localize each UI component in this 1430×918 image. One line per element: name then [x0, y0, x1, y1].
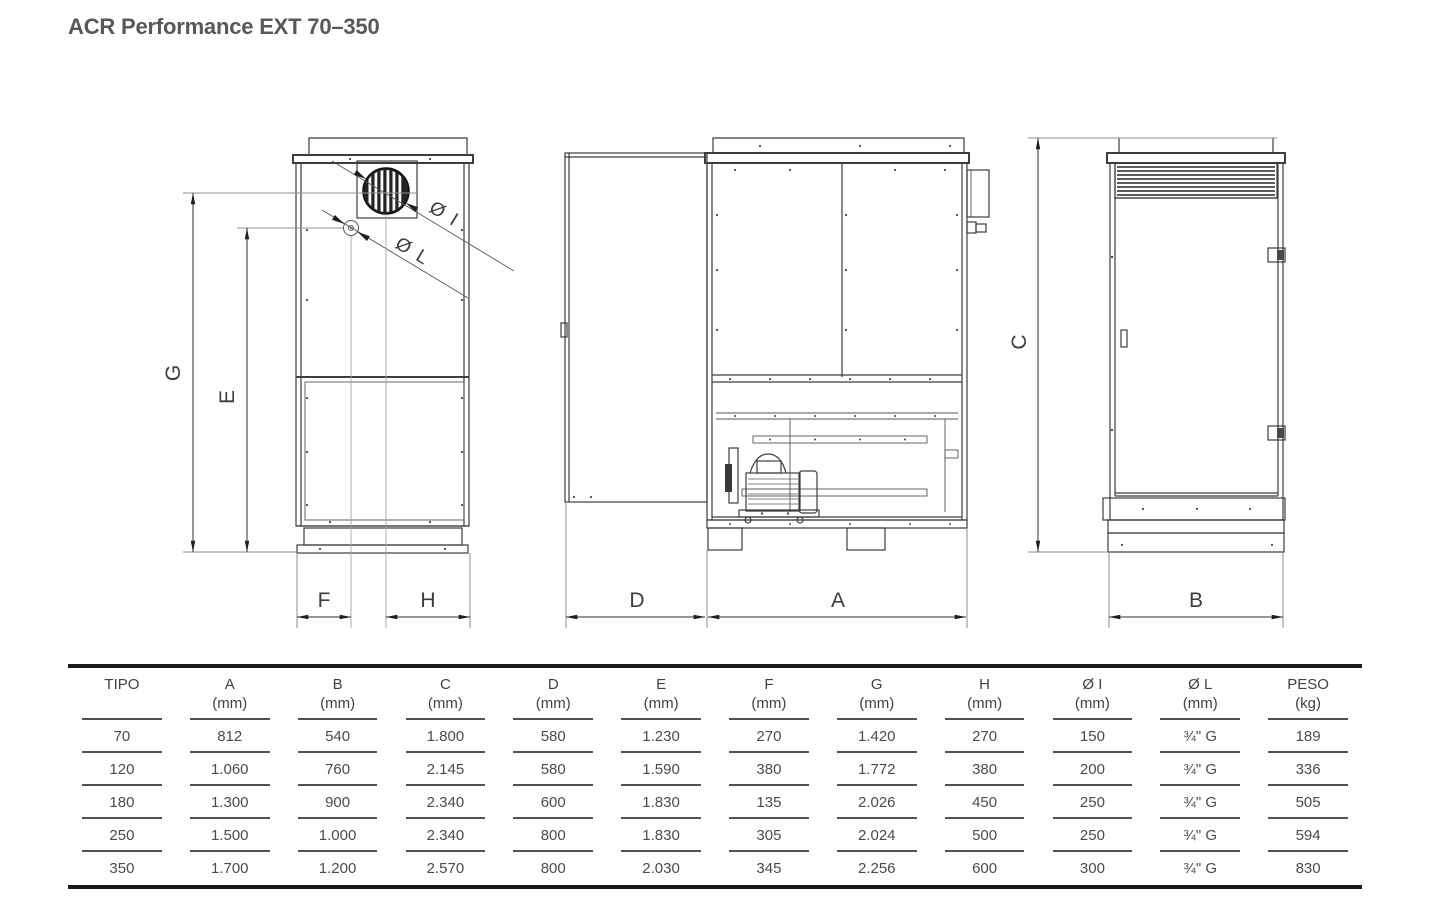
table-cell: 180: [68, 786, 176, 819]
dim-label-g: G: [162, 365, 185, 381]
burner-motor-assembly: [725, 448, 819, 523]
table-cell: 2.256: [823, 852, 931, 885]
table-cell: 450: [931, 786, 1039, 819]
dim-label-c: C: [1008, 334, 1031, 349]
table-cell: 500: [931, 819, 1039, 852]
table-cell: 2.340: [392, 786, 500, 819]
col-header-peso: PESO(kg): [1254, 668, 1362, 720]
table-cell: 2.024: [823, 819, 931, 852]
table-cell: 150: [1039, 720, 1147, 753]
dim-label-e: E: [216, 390, 239, 404]
table-cell: 345: [715, 852, 823, 885]
table-cell: 2.145: [392, 753, 500, 786]
table-cell: 2.030: [607, 852, 715, 885]
table-cell: 600: [499, 786, 607, 819]
table-cell: 380: [931, 753, 1039, 786]
table-cell: 1.590: [607, 753, 715, 786]
table-cell: 300: [1039, 852, 1147, 885]
table-cell: 270: [715, 720, 823, 753]
table-cell: 350: [68, 852, 176, 885]
table-cell: 336: [1254, 753, 1362, 786]
table-cell: 2.570: [392, 852, 500, 885]
dimension-table: TIPO A(mm) B(mm) C(mm) D(mm) E(mm) F(mm)…: [68, 664, 1362, 889]
table-cell: 305: [715, 819, 823, 852]
col-header-c: C(mm): [392, 668, 500, 720]
col-header-g: G(mm): [823, 668, 931, 720]
table-cell: 830: [1254, 852, 1362, 885]
table-cell: ¾" G: [1146, 753, 1254, 786]
dimension-lines: [183, 138, 1283, 628]
table-cell: 2.340: [392, 819, 500, 852]
rear-view-drawing: [1103, 138, 1285, 552]
col-header-h: H(mm): [931, 668, 1039, 720]
table-cell: 800: [499, 819, 607, 852]
table-cell: 1.830: [607, 786, 715, 819]
dim-label-d: D: [629, 589, 644, 612]
col-header-diameter-i: Ø I(mm): [1039, 668, 1147, 720]
screw-dots-side: [716, 169, 958, 331]
table-cell: 2.026: [823, 786, 931, 819]
dim-label-h: H: [420, 589, 435, 612]
table-cell: 505: [1254, 786, 1362, 819]
col-header-a: A(mm): [176, 668, 284, 720]
table-cell: 900: [284, 786, 392, 819]
table-cell: 250: [1039, 786, 1147, 819]
col-header-f: F(mm): [715, 668, 823, 720]
table-cell: 812: [176, 720, 284, 753]
col-header-diameter-l: Ø L(mm): [1146, 668, 1254, 720]
dimension-labels: G E C F H D A B Ø I Ø L: [162, 197, 1203, 612]
table-cell: 800: [499, 852, 607, 885]
table-cell: ¾" G: [1146, 819, 1254, 852]
table-cell: 1.772: [823, 753, 931, 786]
table-cell: 250: [68, 819, 176, 852]
table-cell: ¾" G: [1146, 720, 1254, 753]
table-cell: 135: [715, 786, 823, 819]
table-cell: 1.420: [823, 720, 931, 753]
front-view-drawing: [293, 138, 514, 553]
table-cell: 120: [68, 753, 176, 786]
col-header-tipo: TIPO: [68, 668, 176, 720]
table-cell: 540: [284, 720, 392, 753]
table-cell: 580: [499, 720, 607, 753]
table-cell: 250: [1039, 819, 1147, 852]
side-view-drawing: [561, 138, 989, 550]
table-cell: ¾" G: [1146, 852, 1254, 885]
table-cell: 1.500: [176, 819, 284, 852]
table-cell: 1.700: [176, 852, 284, 885]
table-cell: 580: [499, 753, 607, 786]
col-header-b: B(mm): [284, 668, 392, 720]
table-cell: 189: [1254, 720, 1362, 753]
table-cell: 1.000: [284, 819, 392, 852]
table-cell: 270: [931, 720, 1039, 753]
table-cell: 380: [715, 753, 823, 786]
table-cell: 760: [284, 753, 392, 786]
louver-grille: [1115, 163, 1277, 198]
dim-label-f: F: [318, 589, 331, 612]
table-cell: ¾" G: [1146, 786, 1254, 819]
table-cell: 594: [1254, 819, 1362, 852]
dim-label-a: A: [831, 589, 845, 612]
technical-drawing: G E C F H D A B Ø I Ø L: [0, 0, 1430, 660]
page: ACR Performance EXT 70–350: [0, 0, 1430, 918]
table-cell: 1.800: [392, 720, 500, 753]
table-cell: 200: [1039, 753, 1147, 786]
table-cell: 600: [931, 852, 1039, 885]
table-cell: 1.830: [607, 819, 715, 852]
table-cell: 1.300: [176, 786, 284, 819]
col-header-d: D(mm): [499, 668, 607, 720]
table-cell: 70: [68, 720, 176, 753]
table-cell: 1.060: [176, 753, 284, 786]
table-cell: 1.200: [284, 852, 392, 885]
fan-grille: [357, 161, 417, 218]
table-cell: 1.230: [607, 720, 715, 753]
dim-label-diameter-i: Ø I: [425, 197, 463, 231]
col-header-e: E(mm): [607, 668, 715, 720]
dim-label-b: B: [1189, 589, 1203, 612]
